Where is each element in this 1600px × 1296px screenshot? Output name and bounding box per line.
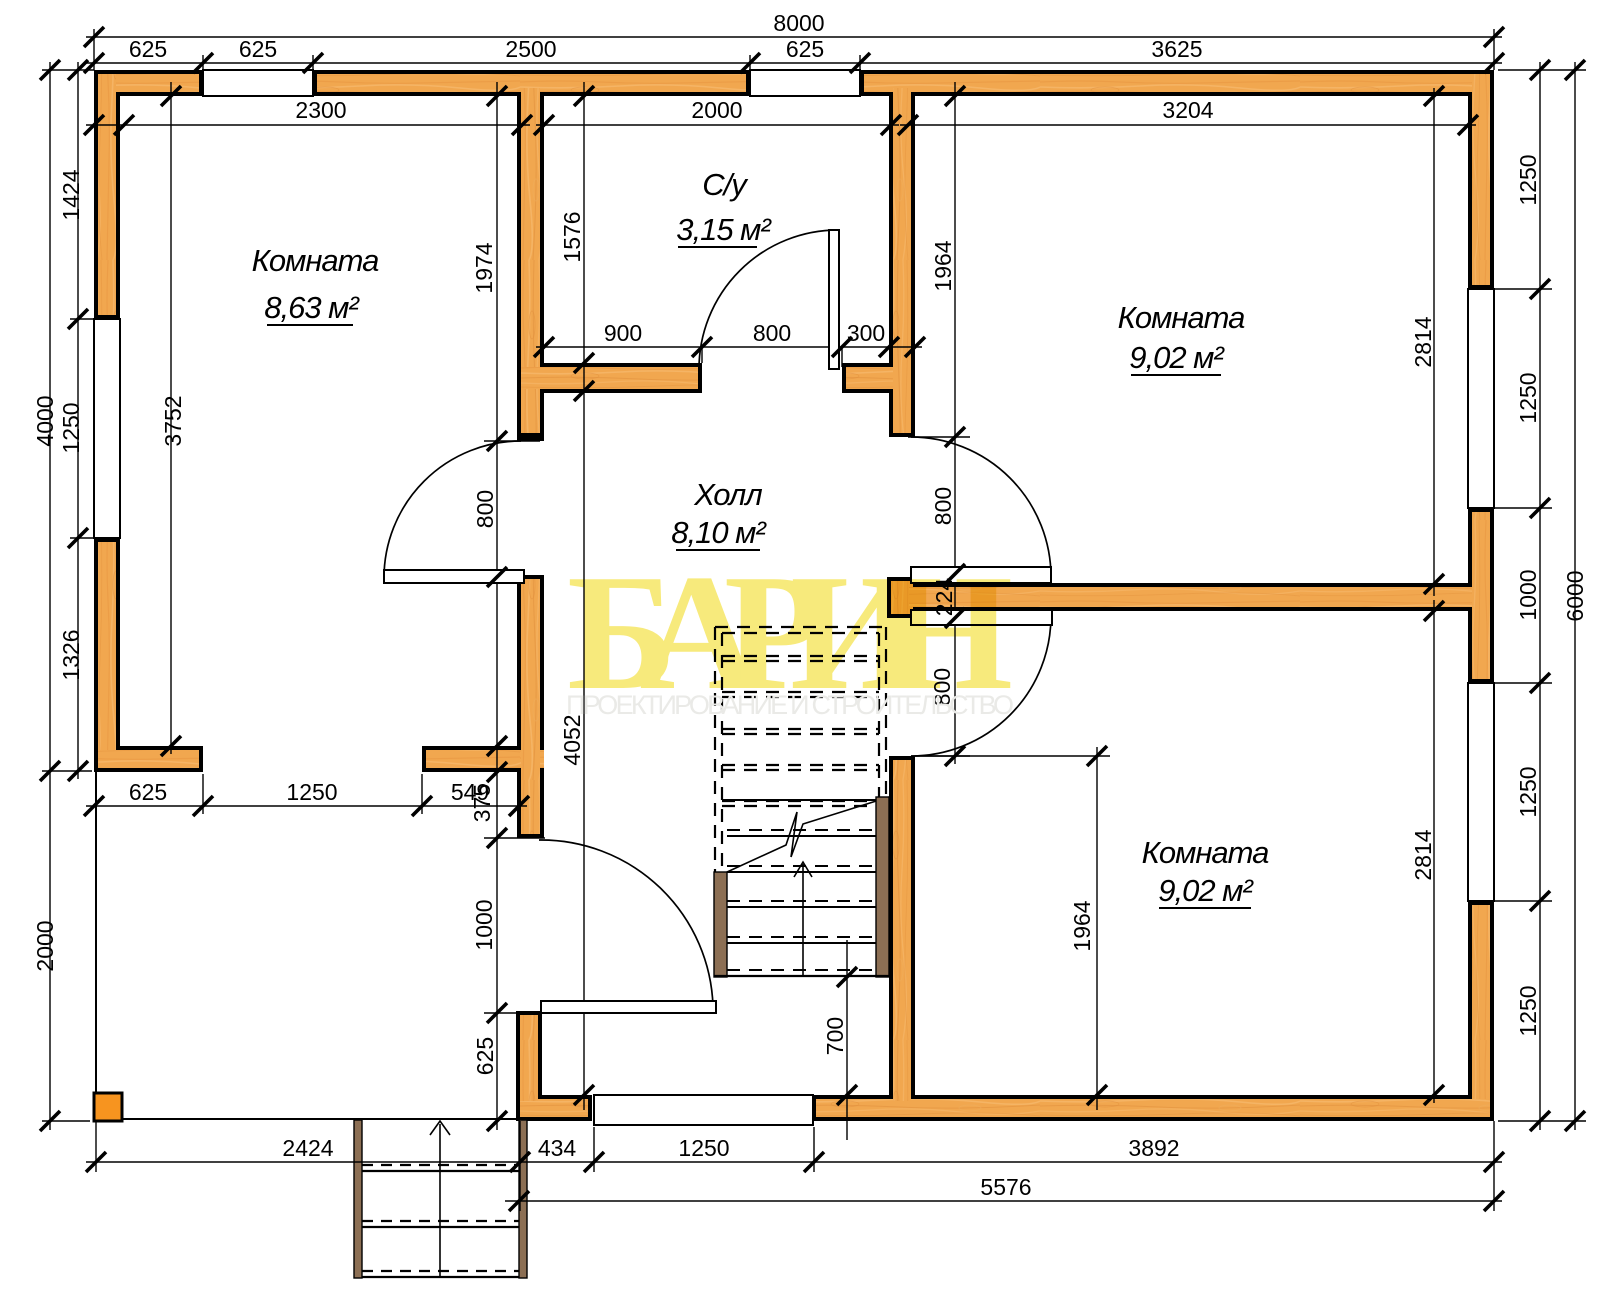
svg-text:625: 625 <box>239 36 277 62</box>
svg-text:1000: 1000 <box>1515 569 1541 620</box>
svg-text:2300: 2300 <box>295 97 346 123</box>
svg-text:2000: 2000 <box>32 920 58 971</box>
svg-text:9,02 м²: 9,02 м² <box>1158 873 1254 908</box>
svg-text:9,02 м²: 9,02 м² <box>1129 340 1225 375</box>
svg-text:700: 700 <box>822 1017 848 1055</box>
svg-text:1974: 1974 <box>471 242 497 293</box>
svg-text:625: 625 <box>129 779 167 805</box>
svg-text:625: 625 <box>786 36 824 62</box>
svg-text:Холл: Холл <box>693 477 762 512</box>
svg-text:1250: 1250 <box>1515 154 1541 205</box>
svg-text:1250: 1250 <box>1515 766 1541 817</box>
svg-text:С/у: С/у <box>702 167 749 202</box>
svg-text:Комната: Комната <box>1142 835 1270 870</box>
svg-text:1964: 1964 <box>930 240 956 291</box>
svg-text:2814: 2814 <box>1410 316 1436 367</box>
svg-text:6000: 6000 <box>1562 570 1588 621</box>
svg-text:1250: 1250 <box>678 1135 729 1161</box>
svg-text:1964: 1964 <box>1069 900 1095 951</box>
svg-text:900: 900 <box>604 320 642 346</box>
svg-text:1576: 1576 <box>559 211 585 262</box>
svg-text:2424: 2424 <box>282 1135 333 1161</box>
svg-text:1424: 1424 <box>58 169 84 220</box>
svg-text:625: 625 <box>472 1037 498 1075</box>
svg-text:3752: 3752 <box>160 395 186 446</box>
svg-text:Комната: Комната <box>1118 300 1246 335</box>
svg-text:БАРИН: БАРИН <box>567 540 1013 724</box>
svg-text:800: 800 <box>930 487 956 525</box>
svg-text:4000: 4000 <box>32 395 58 446</box>
svg-text:1250: 1250 <box>286 779 337 805</box>
svg-text:800: 800 <box>753 320 791 346</box>
svg-text:5576: 5576 <box>980 1174 1031 1200</box>
svg-text:1326: 1326 <box>58 629 84 680</box>
svg-text:800: 800 <box>472 490 498 528</box>
svg-text:8000: 8000 <box>773 10 824 36</box>
svg-text:1250: 1250 <box>58 402 84 453</box>
svg-text:1250: 1250 <box>1515 985 1541 1036</box>
svg-text:434: 434 <box>538 1135 577 1161</box>
svg-text:625: 625 <box>129 36 167 62</box>
svg-text:3625: 3625 <box>1151 36 1202 62</box>
svg-text:1250: 1250 <box>1515 372 1541 423</box>
svg-text:2000: 2000 <box>691 97 742 123</box>
svg-text:Комната: Комната <box>252 243 380 278</box>
svg-text:8,63 м²: 8,63 м² <box>264 290 360 325</box>
svg-text:3204: 3204 <box>1162 97 1213 123</box>
svg-text:375: 375 <box>469 784 495 822</box>
svg-text:3892: 3892 <box>1128 1135 1179 1161</box>
svg-text:300: 300 <box>847 320 885 346</box>
svg-text:2500: 2500 <box>505 36 556 62</box>
svg-text:2814: 2814 <box>1410 829 1436 880</box>
svg-text:3,15 м²: 3,15 м² <box>676 212 772 247</box>
svg-text:1000: 1000 <box>471 899 497 950</box>
